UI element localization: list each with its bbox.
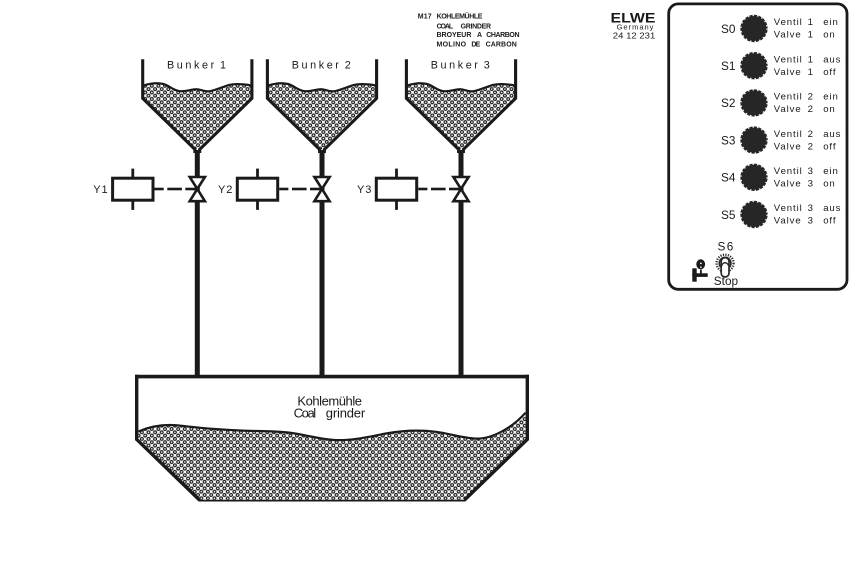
svg-text:Bunker: Bunker (292, 60, 342, 72)
svg-text:BROYEUR: BROYEUR (437, 32, 472, 39)
svg-text:A: A (477, 32, 482, 39)
svg-text:Bunker: Bunker (167, 60, 217, 72)
svg-text:COAL: COAL (437, 23, 454, 30)
svg-text:Bunker: Bunker (431, 60, 481, 72)
svg-text:KOHLEMÜHLE: KOHLEMÜHLE (437, 12, 483, 21)
svg-text:Coal: Coal (294, 405, 317, 420)
svg-text:Ventil3aus: Ventil3aus (774, 203, 842, 214)
svg-text:S6: S6 (718, 240, 735, 254)
svg-text:S0: S0 (721, 22, 736, 36)
svg-text:Stop: Stop (714, 274, 739, 288)
svg-text:Germany: Germany (617, 23, 655, 32)
svg-text:S3: S3 (721, 133, 736, 147)
svg-text:CHARBON: CHARBON (486, 32, 519, 39)
svg-text:1: 1 (220, 60, 226, 72)
svg-text:Ventil1aus: Ventil1aus (774, 54, 842, 65)
svg-text:3: 3 (484, 60, 490, 72)
svg-text:S1: S1 (721, 59, 735, 73)
svg-text:S2: S2 (721, 96, 735, 110)
svg-text:S5: S5 (721, 208, 736, 222)
svg-text:M17: M17 (418, 14, 432, 21)
svg-text:Y1: Y1 (93, 184, 108, 196)
svg-text:Y3: Y3 (357, 184, 372, 196)
svg-text:S4: S4 (721, 171, 736, 185)
svg-text:Ventil2aus: Ventil2aus (774, 129, 842, 140)
svg-text:DE: DE (471, 42, 480, 49)
svg-text:2: 2 (345, 60, 351, 72)
svg-text:MOLINO: MOLINO (437, 42, 467, 49)
svg-text:grinder: grinder (326, 405, 366, 420)
svg-text:GRINDER: GRINDER (461, 23, 491, 30)
svg-text:CARBON: CARBON (486, 42, 517, 49)
svg-text:Y2: Y2 (218, 184, 233, 196)
svg-text:24 12 231: 24 12 231 (613, 31, 656, 40)
